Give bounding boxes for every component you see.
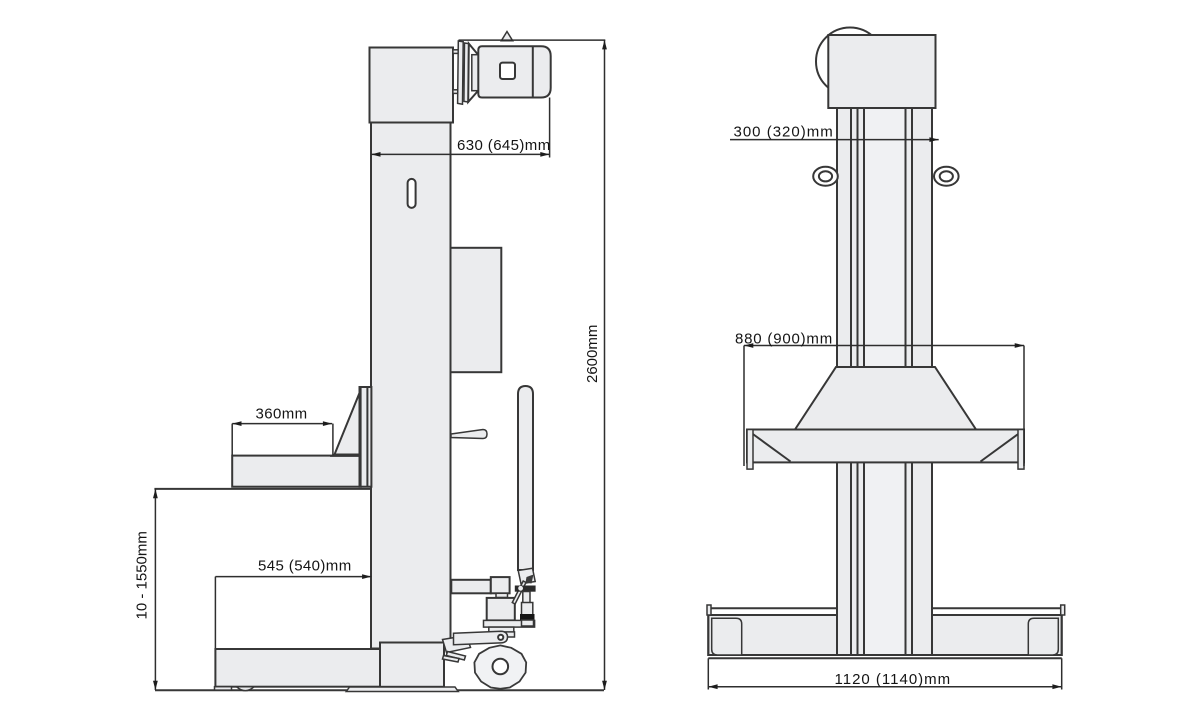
svg-text:1120 (1140)mm: 1120 (1140)mm <box>835 671 952 688</box>
svg-text:880 (900)mm: 880 (900)mm <box>735 331 833 348</box>
svg-text:630 (645)mm: 630 (645)mm <box>457 137 551 154</box>
svg-text:300 (320)mm: 300 (320)mm <box>734 124 834 141</box>
svg-text:2600mm: 2600mm <box>584 325 601 383</box>
svg-text:360mm: 360mm <box>256 406 308 423</box>
svg-text:10 - 1550mm: 10 - 1550mm <box>134 531 151 619</box>
svg-text:545 (540)mm: 545 (540)mm <box>258 558 352 575</box>
